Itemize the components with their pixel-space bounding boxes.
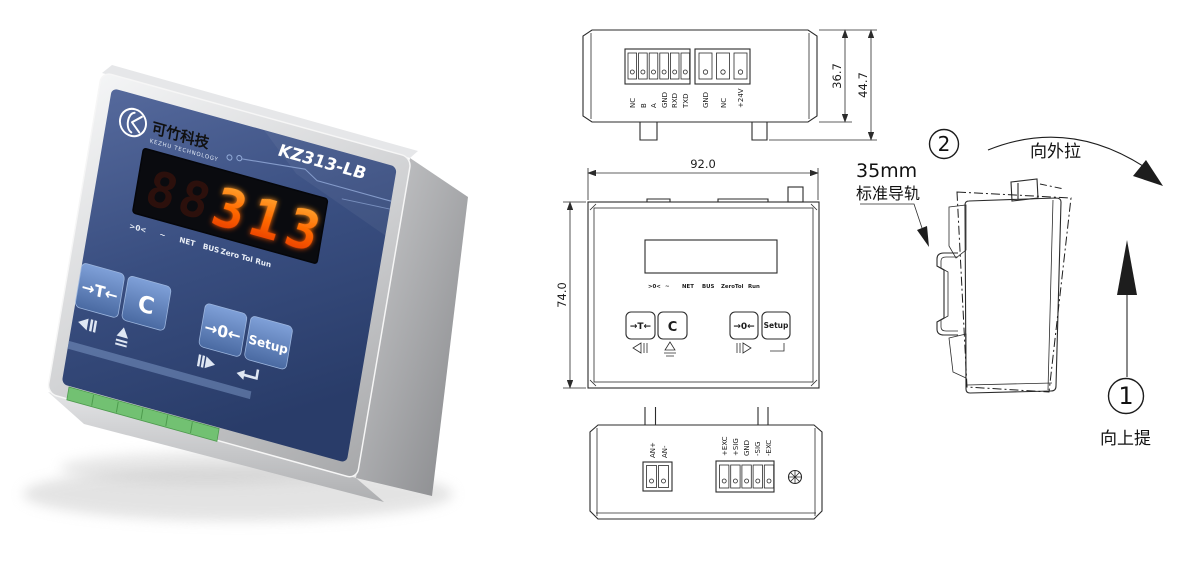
terminal-label: GND <box>661 92 669 108</box>
top-view-dimensions: 36.7 44.7 <box>769 30 877 140</box>
step1-text: 向上提 <box>1100 429 1151 449</box>
terminal-label: A <box>650 103 658 108</box>
step2-text: 向外拉 <box>1030 142 1081 162</box>
lift-arrowhead <box>1117 240 1137 295</box>
front-next-icon <box>737 343 751 353</box>
front-keypad: →T← C →0← Setup <box>626 312 790 356</box>
bottom-view-drawing: AN+ AN- +EXC +SIG GND -SIG -EXC <box>590 425 822 519</box>
dim-92-0: 92.0 <box>690 157 716 171</box>
dim-36-7: 36.7 <box>830 63 844 89</box>
din-rail-profile <box>937 253 958 335</box>
front-indicator: Run <box>748 284 760 290</box>
front-eject-icon <box>664 342 676 356</box>
top-view-drawing: NC B A GND RXD TXD GND NC +24V <box>583 30 877 140</box>
top-view-tabs <box>640 122 767 140</box>
din-clip-tab <box>788 187 803 202</box>
dim-74-0: 74.0 <box>555 282 569 308</box>
terminal-label: +24V <box>737 88 745 108</box>
front-indicator: ZeroTol <box>721 284 744 290</box>
terminal-label: B <box>640 103 648 108</box>
terminal-label: GND <box>743 440 751 456</box>
terminal-label: +EXC <box>721 436 729 456</box>
step1-number: 1 <box>1118 382 1133 410</box>
front-indicator: BUS <box>702 284 714 290</box>
terminal-label: AN- <box>661 445 669 458</box>
front-display-window <box>645 240 777 273</box>
front-indicator: ~ <box>665 284 670 290</box>
loadcell-terminal-block: +EXC +SIG GND -SIG -EXC <box>716 436 774 492</box>
datasheet-canvas: 可竹科技 KEZHU TECHNOLOGY KZ313-LB 88 313 >0… <box>0 0 1200 575</box>
connector-legs <box>645 407 768 425</box>
rail-leader-arrow <box>917 226 929 247</box>
product-photo: 可竹科技 KEZHU TECHNOLOGY KZ313-LB 88 313 >0… <box>23 65 468 521</box>
device-body-solid <box>965 198 1061 393</box>
terminal-label: NC <box>629 98 637 108</box>
front-view-outline <box>588 202 819 388</box>
dim-44-7: 44.7 <box>856 72 870 98</box>
front-indicator-row: >0< ~ NET BUS ZeroTol Run <box>648 284 760 290</box>
terminal-label: +SIG <box>732 438 740 456</box>
device-clip <box>1011 179 1038 201</box>
step2-number: 2 <box>938 132 951 156</box>
front-clear-label: C <box>668 320 678 335</box>
comm-terminal-block: NC B A GND RXD TXD <box>625 49 690 109</box>
side-view-device <box>937 179 1071 393</box>
rear-hook-top <box>949 205 966 258</box>
datasheet-page: 可竹科技 KEZHU TECHNOLOGY KZ313-LB 88 313 >0… <box>0 0 1200 575</box>
top-view-outline <box>583 30 817 122</box>
terminal-label: GND <box>702 92 710 108</box>
terminal-label: RXD <box>671 93 679 108</box>
front-prev-icon <box>633 343 647 353</box>
terminal-label: TXD <box>682 94 690 109</box>
front-view-drawing: >0< ~ NET BUS ZeroTol Run →T← C →0← Setu… <box>555 157 819 425</box>
front-indicator: NET <box>682 284 694 290</box>
terminal-label: -EXC <box>765 440 773 456</box>
install-diagram: 35mm 标准导轨 2 向外拉 1 向上提 <box>856 130 1163 450</box>
rail-size-label: 35mm <box>856 160 917 182</box>
analog-terminal-block: AN+ AN- <box>643 442 672 491</box>
rail-name-label: 标准导轨 <box>856 184 920 203</box>
terminal-label: AN+ <box>649 442 657 458</box>
device-body-ghost <box>957 192 1071 392</box>
front-setup-label: Setup <box>764 321 789 330</box>
front-zero-label: →0← <box>733 322 755 332</box>
rear-hook-bottom <box>949 334 966 378</box>
front-tare-label: →T← <box>630 322 652 332</box>
power-terminal-block: GND NC +24V <box>695 49 750 108</box>
pull-arrowhead <box>1133 160 1163 186</box>
ground-screw-icon <box>789 471 802 484</box>
front-indicator: >0< <box>648 284 661 290</box>
terminal-label: -SIG <box>754 442 762 456</box>
bottom-view-outline <box>590 425 822 519</box>
front-enter-icon <box>770 343 784 351</box>
terminal-label: NC <box>720 98 728 108</box>
